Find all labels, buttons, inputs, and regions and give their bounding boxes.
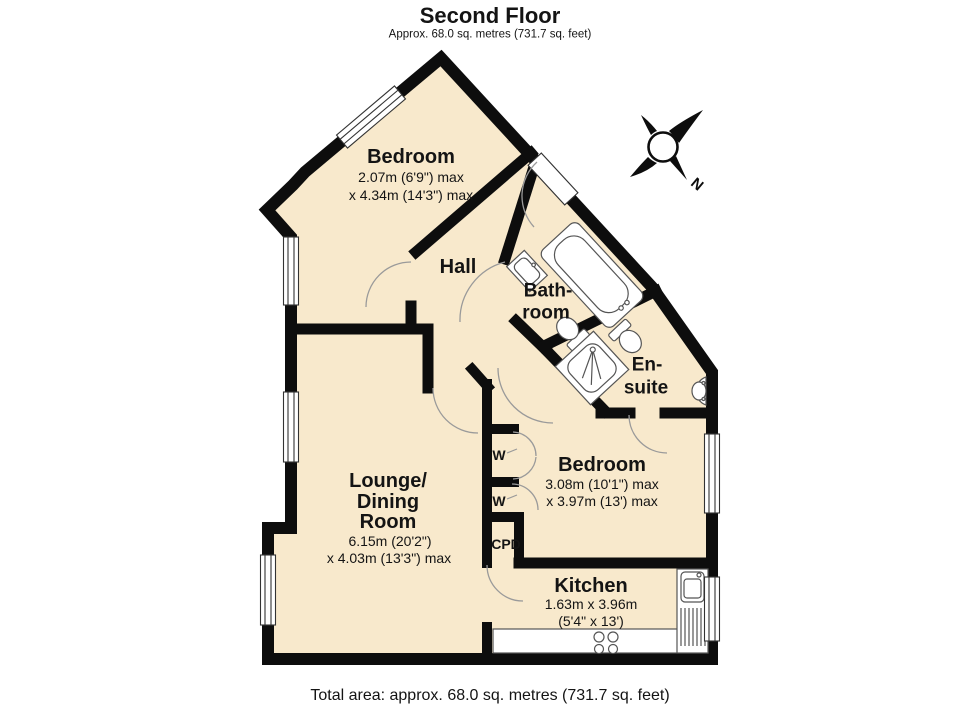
room-dim-bedroom-right-2: x 3.97m (13') max bbox=[546, 494, 658, 508]
room-label-kitchen: Kitchen bbox=[554, 576, 627, 596]
room-label-lounge-2: Dining bbox=[357, 492, 419, 512]
compass-icon: N bbox=[630, 110, 707, 195]
room-dim-bedroom-right-1: 3.08m (10'1") max bbox=[545, 477, 658, 491]
closet-label-wardrobe-2: W bbox=[492, 494, 505, 508]
room-label-bedroom-top: Bedroom bbox=[367, 147, 455, 167]
window-icon bbox=[284, 392, 299, 462]
page-subtitle: Approx. 68.0 sq. metres (731.7 sq. feet) bbox=[389, 29, 592, 41]
room-label-bathroom-2: room bbox=[522, 304, 570, 323]
closet-label-cupboard: CPD bbox=[491, 537, 521, 551]
kitchen-sink-icon bbox=[681, 572, 704, 602]
room-label-lounge-3: Room bbox=[360, 512, 417, 532]
room-label-bathroom-1: Bath- bbox=[524, 282, 573, 301]
page-title: Second Floor bbox=[420, 5, 561, 27]
room-dim-lounge-2: x 4.03m (13'3") max bbox=[327, 551, 451, 565]
room-dim-lounge-1: 6.15m (20'2") bbox=[348, 534, 431, 548]
compass-north-label: N bbox=[687, 175, 706, 195]
window-icon bbox=[705, 577, 720, 641]
room-label-hall: Hall bbox=[440, 257, 477, 277]
kitchen-drainer-icon bbox=[681, 608, 705, 646]
room-label-ensuite-1: En- bbox=[632, 356, 663, 375]
room-dim-bedroom-top-1: 2.07m (6'9") max bbox=[358, 170, 464, 184]
total-area-label: Total area: approx. 68.0 sq. metres (731… bbox=[310, 688, 669, 704]
window-icon bbox=[261, 555, 276, 625]
room-label-lounge-1: Lounge/ bbox=[349, 471, 427, 491]
floorplan-canvas: N bbox=[0, 0, 980, 712]
room-dim-kitchen-2: (5'4" x 13') bbox=[558, 614, 624, 628]
closet-label-wardrobe-1: W bbox=[492, 448, 505, 462]
room-label-bedroom-right: Bedroom bbox=[558, 455, 646, 475]
room-dim-bedroom-top-2: x 4.34m (14'3") max bbox=[349, 188, 473, 202]
window-icon bbox=[284, 237, 299, 305]
room-dim-kitchen-1: 1.63m x 3.96m bbox=[545, 597, 638, 611]
room-label-ensuite-2: suite bbox=[624, 379, 668, 398]
window-icon bbox=[705, 434, 720, 513]
floorplan-page: N Second Floor Approx. 68.0 sq. metres (… bbox=[0, 0, 980, 712]
